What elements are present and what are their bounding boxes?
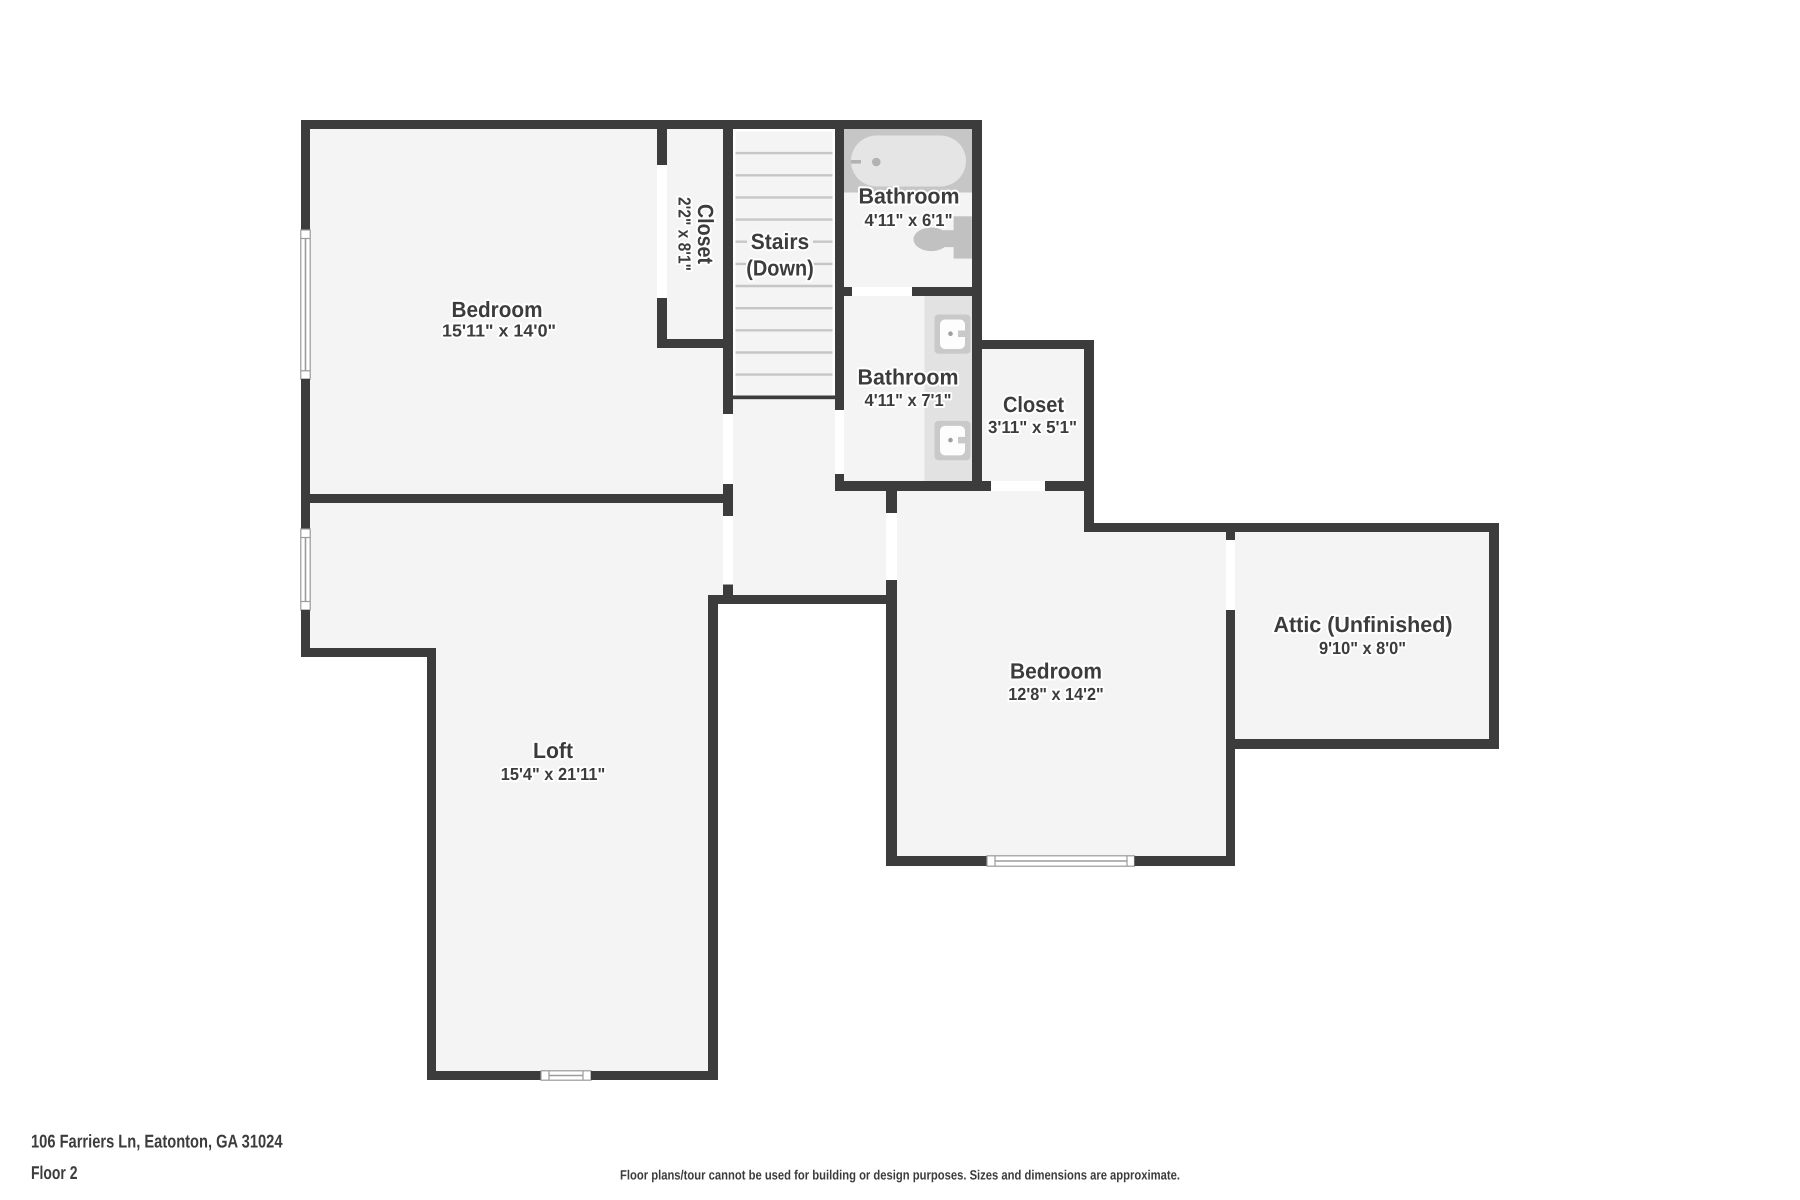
svg-text:Closet: Closet xyxy=(1003,392,1065,417)
svg-text:Floor 2: Floor 2 xyxy=(31,1162,78,1183)
svg-text:Bedroom: Bedroom xyxy=(1010,659,1102,684)
svg-text:Attic (Unfinished): Attic (Unfinished) xyxy=(1274,612,1453,637)
svg-text:Bedroom: Bedroom xyxy=(452,297,543,322)
svg-text:4'11" x 7'1": 4'11" x 7'1" xyxy=(865,390,952,410)
svg-text:(Down): (Down) xyxy=(746,256,814,281)
svg-text:Bathroom: Bathroom xyxy=(858,365,959,390)
svg-text:Floor plans/tour cannot be use: Floor plans/tour cannot be used for buil… xyxy=(620,1168,1180,1183)
svg-text:106 Farriers Ln, Eatonton, GA: 106 Farriers Ln, Eatonton, GA 31024 xyxy=(31,1131,283,1152)
svg-text:Bathroom: Bathroom xyxy=(859,184,960,209)
svg-text:15'4" x 21'11": 15'4" x 21'11" xyxy=(501,764,606,784)
svg-text:3'11" x 5'1": 3'11" x 5'1" xyxy=(988,417,1077,437)
svg-text:12'8" x 14'2": 12'8" x 14'2" xyxy=(1008,684,1104,704)
svg-text:Closet: Closet xyxy=(693,204,718,265)
svg-text:9'10" x 8'0": 9'10" x 8'0" xyxy=(1319,638,1406,658)
svg-text:15'11" x 14'0": 15'11" x 14'0" xyxy=(442,321,556,341)
svg-text:2'2" x 8'1": 2'2" x 8'1" xyxy=(675,197,695,271)
svg-text:4'11" x 6'1": 4'11" x 6'1" xyxy=(865,210,953,230)
svg-text:Stairs: Stairs xyxy=(751,229,810,254)
svg-text:Loft: Loft xyxy=(533,738,574,763)
